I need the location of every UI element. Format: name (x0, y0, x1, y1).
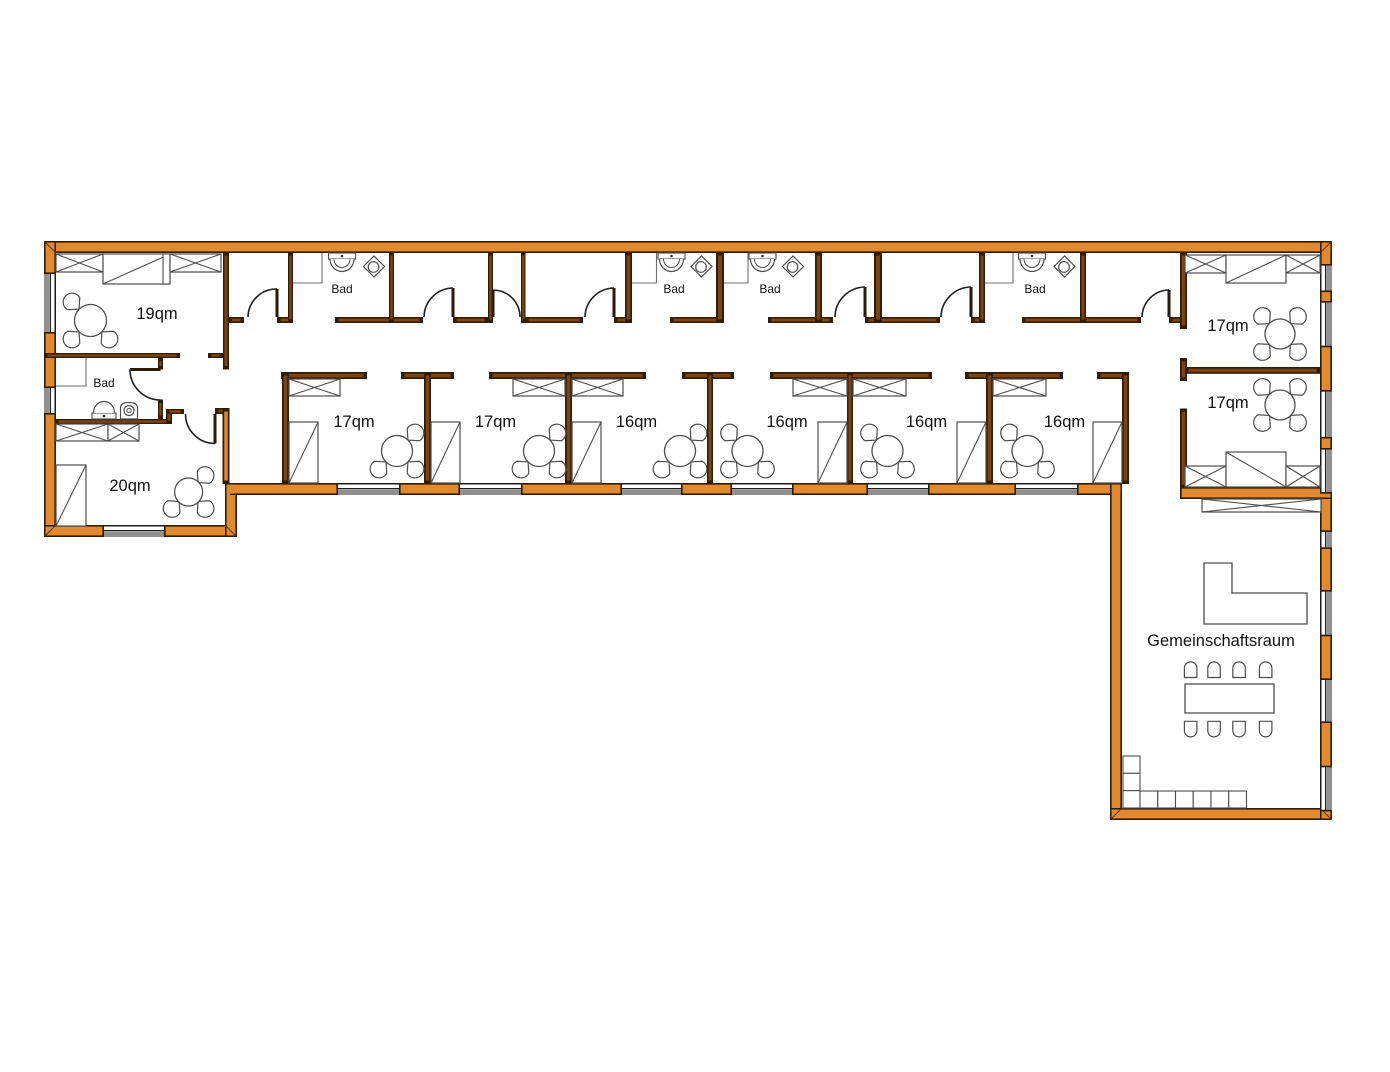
svg-text:17qm: 17qm (1207, 317, 1248, 335)
svg-text:20qm: 20qm (109, 477, 150, 495)
svg-text:16qm: 16qm (1044, 413, 1085, 431)
svg-text:Gemeinschaftsraum: Gemeinschaftsraum (1147, 632, 1295, 650)
svg-text:Bad: Bad (759, 282, 780, 296)
svg-text:17qm: 17qm (475, 413, 516, 431)
svg-text:Bad: Bad (93, 376, 114, 390)
svg-text:16qm: 16qm (616, 413, 657, 431)
svg-text:17qm: 17qm (1207, 394, 1248, 412)
svg-text:Bad: Bad (1024, 282, 1045, 296)
svg-text:16qm: 16qm (906, 413, 947, 431)
svg-text:17qm: 17qm (333, 413, 374, 431)
svg-text:19qm: 19qm (136, 305, 177, 323)
svg-text:Bad: Bad (331, 282, 352, 296)
svg-text:16qm: 16qm (766, 413, 807, 431)
svg-text:Bad: Bad (663, 282, 684, 296)
